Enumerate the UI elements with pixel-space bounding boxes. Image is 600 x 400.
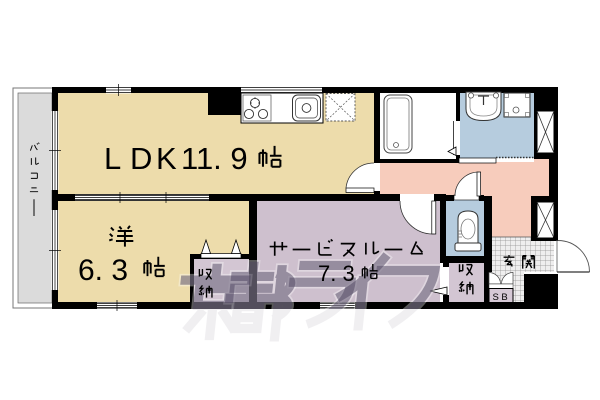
svg-text:D: D	[130, 141, 152, 176]
svg-text:K: K	[156, 141, 177, 176]
svg-text:SB: SB	[493, 292, 511, 303]
svg-text:11. 9: 11. 9	[181, 141, 248, 176]
svg-text:7. 3: 7. 3	[318, 261, 355, 286]
svg-text:6. 3: 6. 3	[78, 254, 128, 287]
svg-text:L: L	[104, 141, 121, 176]
